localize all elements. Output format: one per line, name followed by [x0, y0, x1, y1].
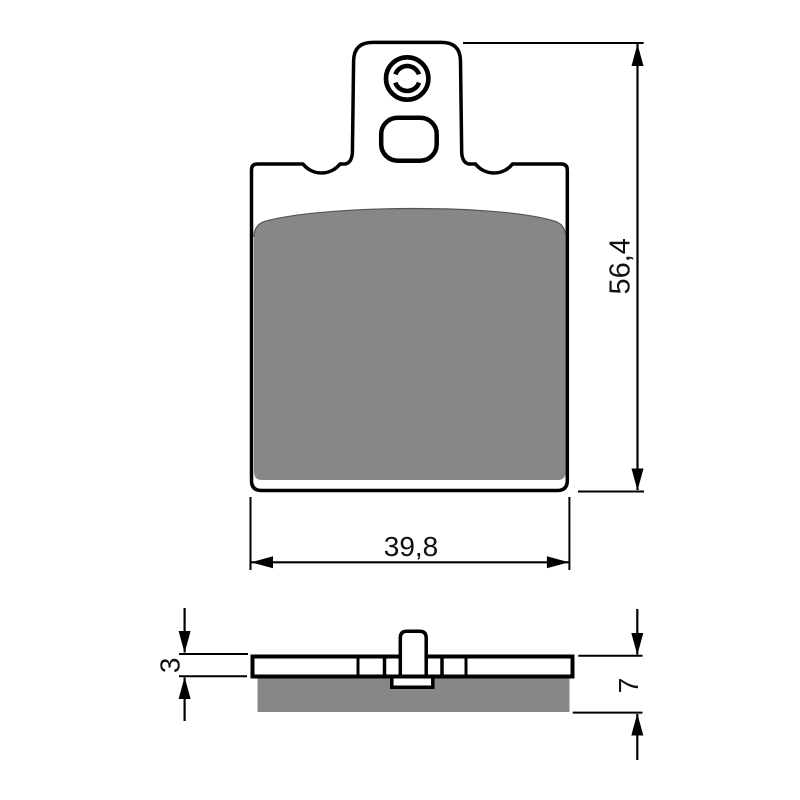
svg-text:7: 7 [613, 678, 644, 694]
svg-text:3: 3 [155, 658, 186, 674]
svg-text:39,8: 39,8 [384, 531, 439, 562]
svg-text:56,4: 56,4 [605, 238, 637, 294]
